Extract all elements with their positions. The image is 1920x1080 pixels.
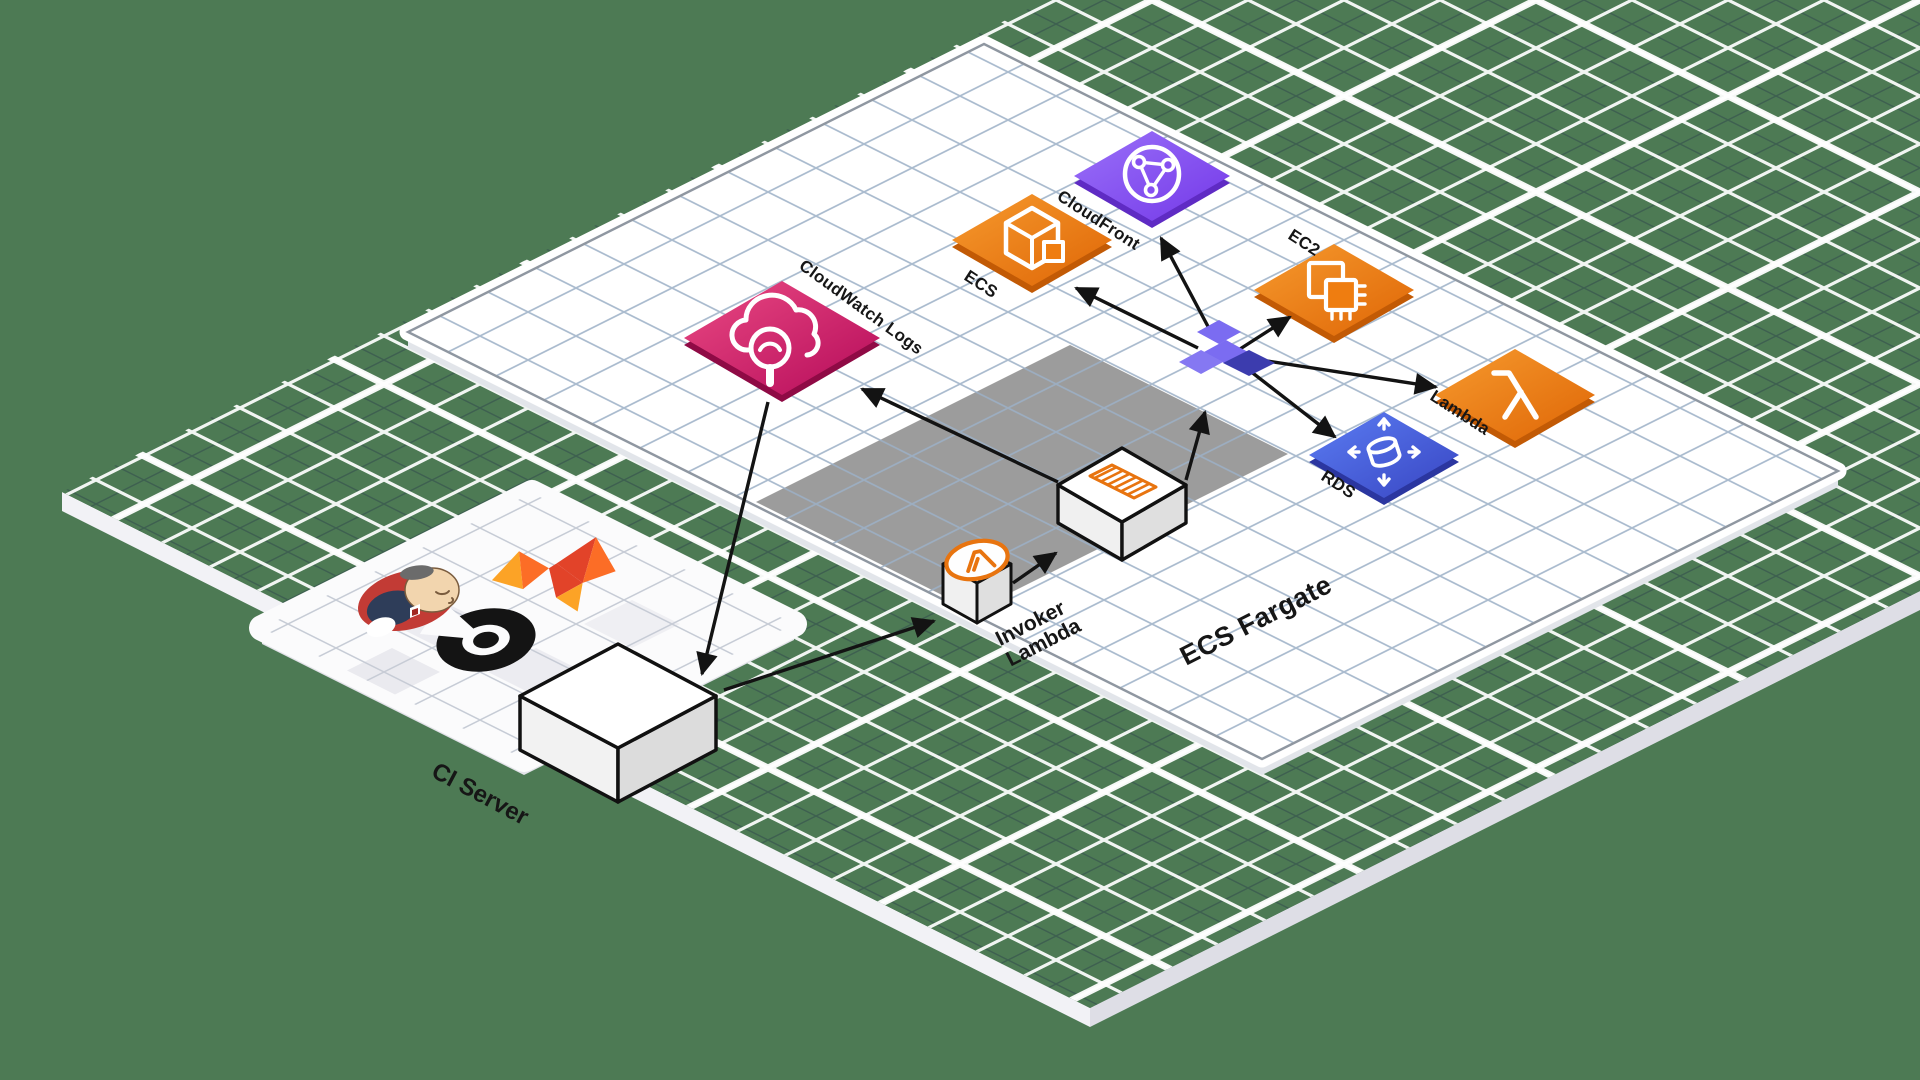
architecture-diagram: CloudWatch Logs ECS CloudFront EC2 Lambd… xyxy=(0,0,1920,1080)
